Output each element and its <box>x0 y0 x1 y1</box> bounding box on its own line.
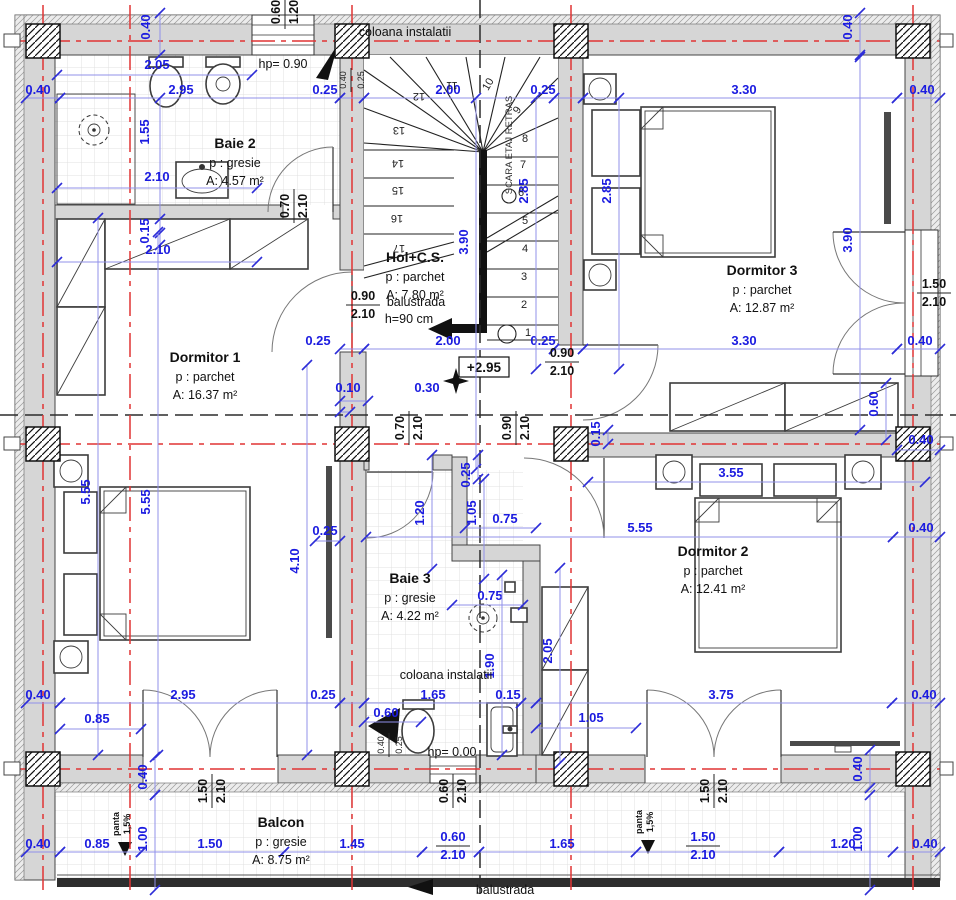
fraction-top: 0.70 <box>393 416 407 440</box>
fraction-dimension: 0.602.10 <box>437 774 469 808</box>
tv-console-dormitor2 <box>790 741 900 752</box>
dimension-label: 3.90 <box>840 227 855 252</box>
fraction-bottom: 2.10 <box>214 779 228 803</box>
dimension-label: 1.45 <box>339 836 364 851</box>
room-floor-finish: p : parchet <box>732 283 792 297</box>
floor-plan-drawing: +2.95 0.402.950.252.000.253.300.400.252.… <box>0 0 956 900</box>
dimension-label: 2.05 <box>540 638 555 663</box>
fraction-top: 1.50 <box>922 277 946 291</box>
dimension-label: 0.15 <box>588 421 603 446</box>
fraction-bottom: 0.25 <box>394 736 404 754</box>
room-area: A: 12.41 m² <box>681 582 746 596</box>
dimension-label: 2.95 <box>168 82 193 97</box>
dimension-label: 0.75 <box>492 511 517 526</box>
dimension-label: 3.55 <box>718 465 743 480</box>
wardrobe-dormitor1 <box>57 219 308 395</box>
dimension-label: 0.85 <box>84 836 109 851</box>
annotation: panta <box>111 811 121 836</box>
fraction-dimension: 0.902.10 <box>500 411 532 445</box>
room-name: Dormitor 3 <box>727 262 798 278</box>
stair-tread-number: 1 <box>525 327 531 339</box>
dimension-label: 0.40 <box>138 14 153 39</box>
dimension-label: 1.55 <box>137 119 152 144</box>
room-floor-finish: p : gresie <box>255 835 306 849</box>
fraction-dimension: 1.502.10 <box>698 774 730 808</box>
fraction-bottom: 2.10 <box>455 779 469 803</box>
dimension-label: 1.05 <box>578 710 603 725</box>
stair-tread-number: 7 <box>520 159 526 171</box>
fraction-dimension: 0.702.10 <box>278 189 310 223</box>
dimension-label: 0.85 <box>84 711 109 726</box>
annotation: coloana instalatii <box>400 668 492 682</box>
stair-tread-number: 12 <box>413 90 425 102</box>
dimension-label: 5.55 <box>78 479 93 504</box>
room-area: A: 8.75 m² <box>252 853 310 867</box>
dimension-label: 0.40 <box>135 764 150 789</box>
fraction-bottom: 2.10 <box>518 416 532 440</box>
stair-tread-number: 13 <box>393 124 405 136</box>
room-area: A: 12.87 m² <box>730 301 795 315</box>
fraction-top: 1.50 <box>196 779 210 803</box>
fraction-dimension: 0.902.10 <box>545 346 579 378</box>
stair-tread-number: 17 <box>393 242 405 254</box>
balcony-door-dormitor1 <box>143 690 277 757</box>
dimension-label: 1.50 <box>197 836 222 851</box>
wall-baie2 <box>55 205 283 219</box>
room-name: Baie 2 <box>214 135 255 151</box>
door-dormitor3 <box>583 345 658 420</box>
dimension-label: 4.10 <box>287 548 302 573</box>
annotation: hp= 0.00 <box>427 745 476 759</box>
fraction-top: 0.40 <box>376 736 386 754</box>
stair-tread-number: 3 <box>521 271 527 283</box>
annotation: 1,5% <box>645 812 655 833</box>
dimension-label: 0.75 <box>477 588 502 603</box>
fraction-dimension: 0.602.10 <box>436 829 470 862</box>
dimension-label: 0.40 <box>909 82 934 97</box>
dimension-label: 3.75 <box>708 687 733 702</box>
fraction-bottom: 1.20 <box>287 0 301 24</box>
fraction-top: 0.60 <box>437 779 451 803</box>
dimension-label: 0.15 <box>495 687 520 702</box>
annotation: hp= 0.90 <box>258 57 307 71</box>
room-floor-finish: p : parchet <box>175 370 235 384</box>
fraction-top: 0.40 <box>338 71 348 89</box>
dimension-label: 0.15 <box>137 218 152 243</box>
fraction-top: 0.90 <box>500 416 514 440</box>
dimension-label: 2.05 <box>144 57 169 72</box>
dimension-label: 0.10 <box>335 380 360 395</box>
dimension-label: 1.65 <box>549 836 574 851</box>
annotation: coloana instalatii <box>359 25 451 39</box>
fraction-dimension: 1.502.10 <box>686 829 720 862</box>
fraction-bottom: 2.10 <box>440 847 465 862</box>
dimension-label: 0.40 <box>850 756 865 781</box>
dimension-label: 0.40 <box>911 687 936 702</box>
room-floor-finish: p : gresie <box>209 156 260 170</box>
dimension-label: 0.25 <box>312 523 337 538</box>
room-floor-finish: p : parchet <box>683 564 743 578</box>
dimension-label: 1.00 <box>135 826 150 851</box>
stair-tread-number: 14 <box>392 157 404 169</box>
fraction-dimension: 0.902.10 <box>346 289 380 321</box>
dimension-label: 2.95 <box>170 687 195 702</box>
dimension-label: 0.30 <box>414 380 439 395</box>
room-name: Baie 3 <box>389 570 430 586</box>
dimension-label: 2.10 <box>144 169 169 184</box>
fraction-bottom: 2.10 <box>296 194 310 218</box>
dimension-label: 0.40 <box>908 520 933 535</box>
dimension-label: 0.40 <box>25 836 50 851</box>
fraction-dimension: 0.601.20 <box>269 0 301 29</box>
room-area: A: 16.37 m² <box>173 388 238 402</box>
stair-tread-number: 5 <box>522 215 528 227</box>
wardrobe-dormitor2 <box>542 587 588 755</box>
room-area: A: 4.22 m² <box>381 609 439 623</box>
dimension-label: 3.30 <box>731 82 756 97</box>
fraction-bottom: 2.10 <box>922 295 946 309</box>
dimension-label: 3.30 <box>731 333 756 348</box>
dimension-label: 0.60 <box>373 705 398 720</box>
dimension-label: 1.05 <box>464 500 479 525</box>
floor-plan-page: +2.95 0.402.950.252.000.253.300.400.252.… <box>0 0 956 900</box>
level-marker-value: +2.95 <box>467 360 502 375</box>
door-dormitor2 <box>524 458 604 538</box>
dimension-label: 3.90 <box>456 229 471 254</box>
tv-dormitor3 <box>884 112 891 224</box>
annotation: h=90 cm <box>385 312 433 326</box>
dimension-label: 2.00 <box>435 333 460 348</box>
fraction-bottom: 2.10 <box>550 364 574 378</box>
tv-dormitor1 <box>326 466 332 638</box>
fraction-dimension: 1.502.10 <box>917 277 951 309</box>
wardrobe-dormitor3 <box>670 383 898 431</box>
fraction-top: 1.50 <box>698 779 712 803</box>
dimension-label: 0.60 <box>866 391 881 416</box>
dimension-label: 5.55 <box>138 489 153 514</box>
annotation: panta <box>634 809 644 834</box>
fraction-bottom: 2.10 <box>411 416 425 440</box>
annotation: 1,5% <box>122 814 132 835</box>
fraction-top: 1.50 <box>690 829 715 844</box>
dimension-label: 0.40 <box>25 687 50 702</box>
dimension-label: 0.25 <box>310 687 335 702</box>
room-floor-finish: p : gresie <box>384 591 435 605</box>
dimension-label: 2.85 <box>599 178 614 203</box>
fraction-top: 0.70 <box>278 194 292 218</box>
dimension-label: 1.65 <box>420 687 445 702</box>
stair-tread-number: 8 <box>522 133 528 145</box>
fraction-top: 0.90 <box>550 346 574 360</box>
dimension-label: 0.40 <box>912 836 937 851</box>
dimension-label: 0.25 <box>458 462 473 487</box>
room-name: Dormitor 1 <box>170 349 241 365</box>
dimension-label: 1.20 <box>412 500 427 525</box>
fraction-top: 0.90 <box>351 289 375 303</box>
dimension-label: 0.25 <box>305 333 330 348</box>
stair-tread-number: 15 <box>392 184 404 196</box>
stair-tread-number: 6 <box>518 187 524 199</box>
fraction-bottom: 2.10 <box>716 779 730 803</box>
stair-tread-number: 11 <box>446 79 457 91</box>
room-area: A: 4.57 m² <box>206 174 264 188</box>
dimension-label: 0.40 <box>25 82 50 97</box>
fraction-top: 0.60 <box>440 829 465 844</box>
dimension-label: 0.40 <box>840 14 855 39</box>
room-floor-finish: p : parchet <box>385 270 445 284</box>
fraction-bottom: 2.10 <box>351 307 375 321</box>
annotation: balustrada <box>476 883 534 897</box>
room-name: Dormitor 2 <box>678 543 749 559</box>
annotation: balustrada <box>387 295 445 309</box>
dimension-label: 1.20 <box>830 836 855 851</box>
dimension-label: 0.40 <box>908 432 933 447</box>
room-name: Balcon <box>258 814 305 830</box>
dimension-label: 0.40 <box>907 333 932 348</box>
stair-tread-number: 4 <box>522 243 528 255</box>
dimension-label: 0.25 <box>312 82 337 97</box>
stair-tread-number: 16 <box>391 212 403 224</box>
fraction-dimension: 1.502.10 <box>196 774 228 808</box>
wall-middle <box>560 433 940 457</box>
fraction-bottom: 2.10 <box>690 847 715 862</box>
fraction-bottom: 0.25 <box>356 71 366 89</box>
dimension-label: 0.25 <box>530 82 555 97</box>
stair-tread-number: 2 <box>521 299 527 311</box>
fraction-top: 0.60 <box>269 0 283 24</box>
window-top <box>252 15 314 55</box>
dimension-label: 5.55 <box>627 520 652 535</box>
fraction-dimension: 0.702.10 <box>393 411 425 445</box>
